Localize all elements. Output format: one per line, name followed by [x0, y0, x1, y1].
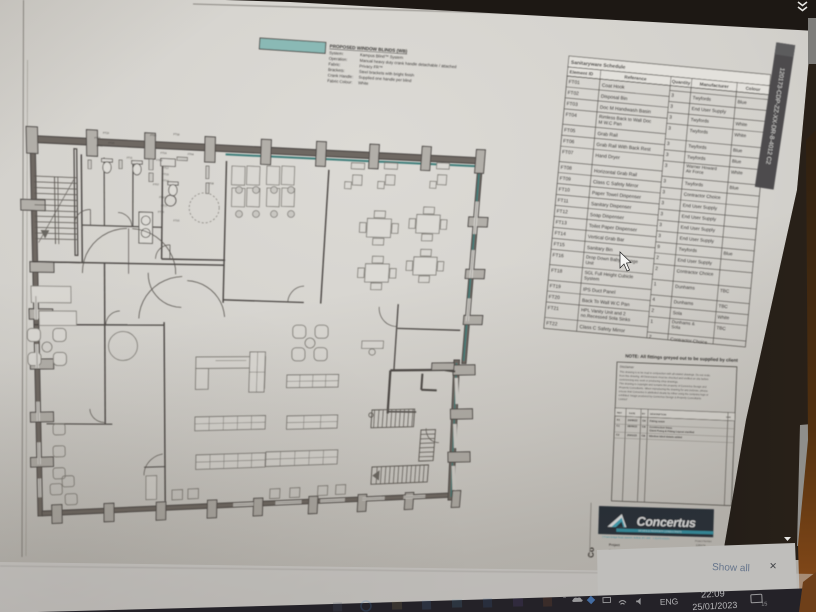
svg-text:⌃: ⌃	[562, 596, 567, 603]
svg-text:22:09: 22:09	[701, 588, 725, 600]
svg-text:✕: ✕	[769, 561, 777, 572]
svg-text:Show all: Show all	[712, 562, 750, 574]
svg-text:ENG: ENG	[660, 596, 679, 607]
svg-text:15: 15	[761, 601, 767, 607]
svg-text:25/01/2023: 25/01/2023	[692, 600, 738, 612]
